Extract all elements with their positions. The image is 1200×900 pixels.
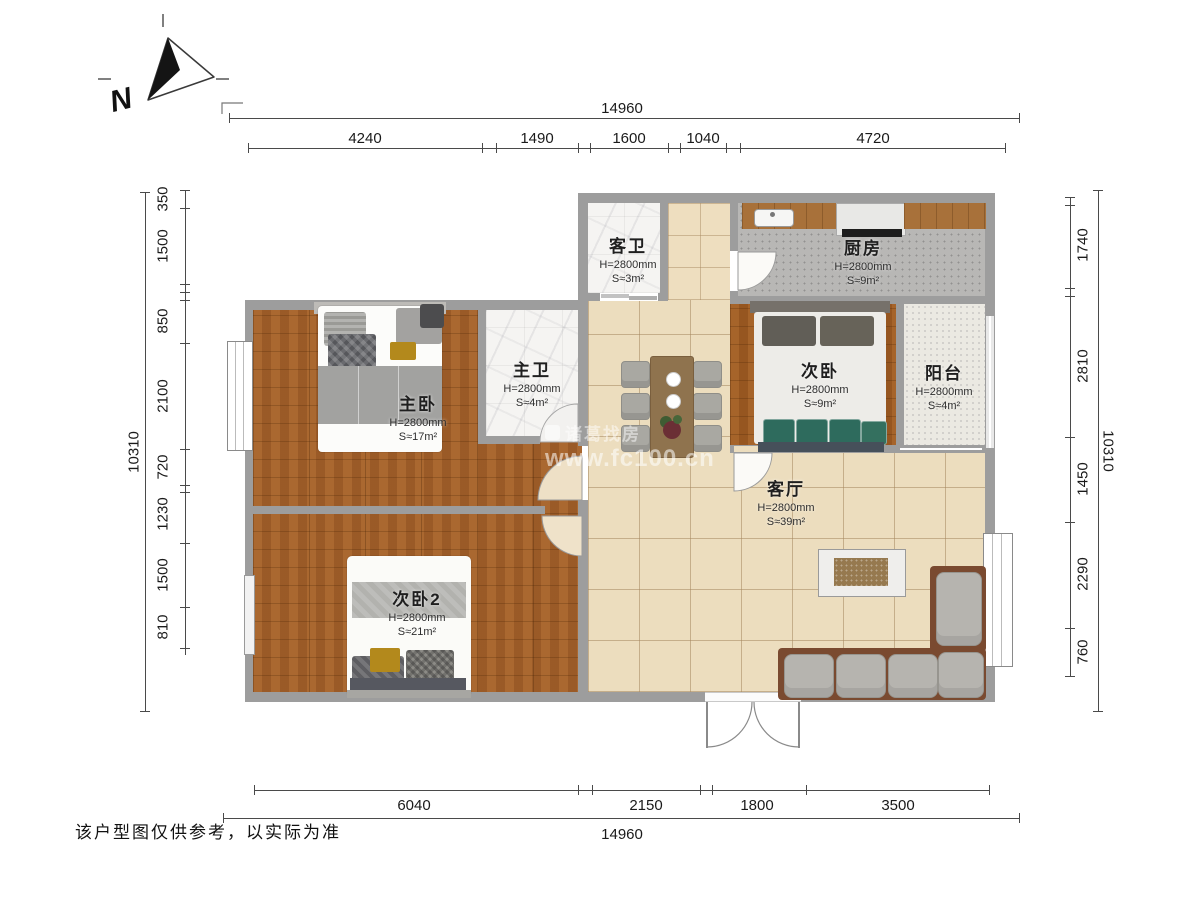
room-height: H=2800mm bbox=[834, 261, 891, 273]
dim-left-seg-7: 1500 bbox=[155, 558, 172, 591]
dim-tick bbox=[140, 192, 150, 193]
dim-tick bbox=[1065, 288, 1075, 289]
dim-left-seg-1: 350 bbox=[155, 186, 172, 211]
dim-bottom-total: 14960 bbox=[601, 826, 643, 843]
room-label-guest-bath: 客卫 H=2800mm S≈3m² bbox=[599, 232, 656, 285]
watermark-brand-row: 诸葛找房 bbox=[545, 420, 715, 445]
dim-tick bbox=[248, 143, 249, 153]
dim-tick bbox=[180, 648, 190, 649]
watermark-logo-icon bbox=[545, 425, 560, 440]
room-area: S≈17m² bbox=[389, 431, 446, 443]
dim-tick bbox=[726, 143, 727, 153]
dim-tick bbox=[680, 143, 681, 153]
room-label-balcony: 阳台 H=2800mm S≈4m² bbox=[915, 359, 972, 412]
north-label: N bbox=[106, 81, 136, 119]
dim-tick bbox=[806, 785, 807, 795]
dim-right-seg-1: 1740 bbox=[1075, 228, 1092, 261]
watermark-brand: 诸葛找房 bbox=[565, 420, 641, 445]
dim-top-seg-3: 1600 bbox=[612, 130, 645, 147]
room-name: 厨房 bbox=[834, 234, 891, 259]
dim-line-bottom-total bbox=[223, 818, 1020, 819]
dim-line-bottom-segments bbox=[254, 790, 990, 791]
watermark: 诸葛找房 www.fc100.cn bbox=[545, 420, 715, 473]
dim-tick bbox=[592, 785, 593, 795]
dim-tick bbox=[1065, 197, 1075, 198]
room-label-master-bedroom: 主卧 H=2800mm S≈17m² bbox=[389, 390, 446, 443]
dim-tick bbox=[180, 208, 190, 209]
room-area: S≈39m² bbox=[757, 516, 814, 528]
dim-tick bbox=[180, 449, 190, 450]
dim-tick bbox=[496, 143, 497, 153]
dim-tick bbox=[740, 143, 741, 153]
dim-top-seg-5: 4720 bbox=[856, 130, 889, 147]
compass-corner-mark bbox=[222, 103, 243, 114]
dim-left-seg-2: 1500 bbox=[155, 229, 172, 262]
room-name: 次卧 bbox=[791, 357, 848, 382]
dim-bottom-seg-3: 1800 bbox=[740, 797, 773, 814]
room-area: S≈4m² bbox=[915, 400, 972, 412]
dim-right-seg-2: 2810 bbox=[1075, 349, 1092, 382]
dim-right-seg-4: 2290 bbox=[1075, 557, 1092, 590]
dim-tick bbox=[712, 785, 713, 795]
room-name: 阳台 bbox=[915, 359, 972, 384]
dim-left-seg-4: 2100 bbox=[155, 379, 172, 412]
dim-tick bbox=[180, 485, 190, 486]
dim-tick bbox=[180, 300, 190, 301]
room-area: S≈21m² bbox=[388, 626, 445, 638]
dim-tick bbox=[1019, 113, 1020, 123]
room-area: S≈9m² bbox=[834, 275, 891, 287]
room-name: 次卧2 bbox=[388, 585, 445, 610]
dim-tick bbox=[1005, 143, 1006, 153]
entry-door-swing bbox=[754, 702, 799, 747]
dim-left-seg-3: 850 bbox=[155, 308, 172, 333]
kitchen-door-swing bbox=[738, 252, 776, 290]
dim-tick bbox=[668, 143, 669, 153]
dim-tick bbox=[1093, 711, 1103, 712]
room-name: 客厅 bbox=[757, 475, 814, 500]
dim-bottom-seg-2: 2150 bbox=[629, 797, 662, 814]
dim-bottom-seg-4: 3500 bbox=[881, 797, 914, 814]
dim-line-left-total bbox=[145, 192, 146, 712]
dim-tick bbox=[1093, 190, 1103, 191]
dim-left-seg-8: 810 bbox=[155, 614, 172, 639]
dim-tick bbox=[180, 284, 190, 285]
dim-tick bbox=[223, 813, 224, 823]
dim-tick bbox=[140, 711, 150, 712]
dim-tick bbox=[180, 343, 190, 344]
dim-tick bbox=[229, 113, 230, 123]
dim-tick bbox=[700, 785, 701, 795]
dim-right-total: 10310 bbox=[1100, 430, 1117, 472]
dim-top-seg-2: 1490 bbox=[520, 130, 553, 147]
room-name: 主卫 bbox=[503, 356, 560, 381]
dim-top-seg-4: 1040 bbox=[686, 130, 719, 147]
dim-tick bbox=[180, 492, 190, 493]
room-area: S≈9m² bbox=[791, 398, 848, 410]
dim-tick bbox=[1019, 813, 1020, 823]
room-height: H=2800mm bbox=[389, 417, 446, 429]
floorplan-canvas: N 客卫 H=2800mm S≈3m² 厨房 H=2800mm S≈9m² 主卫… bbox=[0, 0, 1200, 900]
room-height: H=2800mm bbox=[503, 383, 560, 395]
room-name: 主卧 bbox=[389, 390, 446, 415]
room-area: S≈3m² bbox=[599, 273, 656, 285]
dim-left-seg-6: 1230 bbox=[155, 497, 172, 530]
room-label-second-bedroom2: 次卧2 H=2800mm S≈21m² bbox=[388, 585, 445, 638]
dim-right-seg-5: 760 bbox=[1075, 639, 1092, 664]
room-label-living-room: 客厅 H=2800mm S≈39m² bbox=[757, 475, 814, 528]
dim-tick bbox=[180, 190, 190, 191]
dim-tick bbox=[989, 785, 990, 795]
dim-tick bbox=[590, 143, 591, 153]
dim-tick bbox=[1065, 205, 1075, 206]
dim-tick bbox=[578, 143, 579, 153]
dim-tick bbox=[482, 143, 483, 153]
dim-tick bbox=[1065, 628, 1075, 629]
dim-tick bbox=[1065, 437, 1075, 438]
disclaimer-text: 该户型图仅供参考，以实际为准 bbox=[75, 818, 341, 843]
dim-top-seg-1: 4240 bbox=[348, 130, 381, 147]
dim-tick bbox=[1065, 296, 1075, 297]
dim-line-top-segments bbox=[248, 148, 1006, 149]
dim-line-top-total bbox=[230, 118, 1020, 119]
room-height: H=2800mm bbox=[599, 259, 656, 271]
dim-bottom-seg-1: 6040 bbox=[397, 797, 430, 814]
room-height: H=2800mm bbox=[915, 386, 972, 398]
room-height: H=2800mm bbox=[388, 612, 445, 624]
dim-tick bbox=[180, 292, 190, 293]
dim-tick bbox=[180, 543, 190, 544]
room-name: 客卫 bbox=[599, 232, 656, 257]
dim-left-total: 10310 bbox=[126, 431, 143, 473]
second-bedroom2-door-swing bbox=[542, 516, 582, 556]
watermark-url: www.fc100.cn bbox=[545, 445, 715, 473]
dim-left-seg-5: 720 bbox=[155, 454, 172, 479]
room-area: S≈4m² bbox=[503, 397, 560, 409]
entry-door-swing bbox=[707, 702, 752, 747]
dim-tick bbox=[254, 785, 255, 795]
dim-tick bbox=[1065, 676, 1075, 677]
dim-tick bbox=[180, 607, 190, 608]
room-label-kitchen: 厨房 H=2800mm S≈9m² bbox=[834, 234, 891, 287]
room-height: H=2800mm bbox=[791, 384, 848, 396]
room-height: H=2800mm bbox=[757, 502, 814, 514]
dim-tick bbox=[578, 785, 579, 795]
dim-tick bbox=[1065, 522, 1075, 523]
room-label-master-bath: 主卫 H=2800mm S≈4m² bbox=[503, 356, 560, 409]
dim-top-total: 14960 bbox=[601, 100, 643, 117]
dim-right-seg-3: 1450 bbox=[1075, 462, 1092, 495]
dim-line-left-segments bbox=[185, 190, 186, 655]
room-label-second-bedroom: 次卧 H=2800mm S≈9m² bbox=[791, 357, 848, 410]
